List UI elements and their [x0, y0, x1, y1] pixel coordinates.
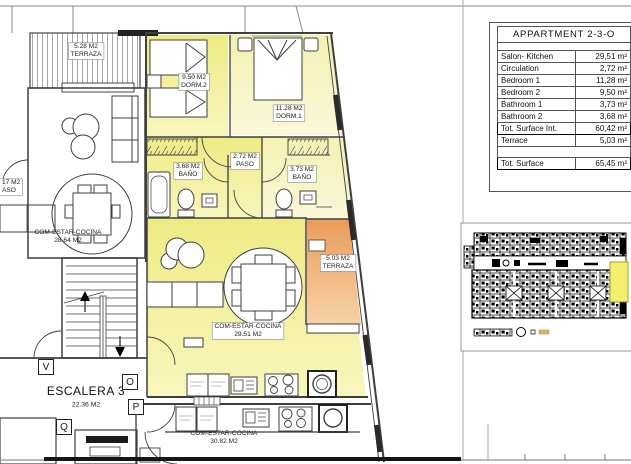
room-label-dorm2: 9.50 M2 DORM.2: [179, 74, 209, 90]
table-row: Circulation 2,72 m²: [498, 63, 631, 75]
surface-table: APPARTMENT 2-3-O Salon- Kitchen 29,51 m²…: [497, 26, 631, 170]
stair-up-arrow-icon: [80, 291, 90, 312]
stove-icon: [265, 374, 298, 396]
room-label-dorm1: 11.28 M2 DORM.1: [273, 105, 304, 121]
room-label-neighbor-south: COM-ESTAR-COCINA 30.82 M2: [189, 430, 260, 446]
dining-table-icon: [224, 248, 302, 326]
room-label-bano2: 3.68 M2 BAÑO: [174, 163, 202, 179]
room-label-paso-west: 17 M2 ASO: [0, 179, 22, 195]
kitchen-unit: [176, 407, 196, 431]
neighbor-s-kitchen: [165, 405, 360, 432]
room-label-escalera-area: 22.36 M2: [72, 402, 100, 409]
key-plan: [461, 223, 631, 351]
floorplan-sheet: 5.28 M2 TERRAZA COM-ESTAR-COCINA 28.64 M…: [0, 0, 631, 464]
room-label-neighbor-nw: COM-ESTAR-COCINA 28.64 M2: [33, 229, 104, 245]
terrace-nw: [30, 30, 158, 92]
stove-icon: [279, 407, 312, 431]
marker-v: V: [38, 359, 54, 375]
toilet-icon: [178, 189, 194, 209]
nightstand-icon: [304, 38, 318, 51]
table-row: Bedroom 2 9,50 m²: [498, 87, 631, 99]
sofa-icon: [112, 96, 138, 162]
kitchen-unit: [208, 374, 229, 396]
shelf-icon: [184, 338, 203, 347]
surface-table-title: APPARTMENT 2-3-O: [498, 27, 631, 43]
table-row: Salon- Kitchen 29,51 m²: [498, 51, 631, 63]
stair-down-arrow-icon: [115, 336, 125, 357]
toilet-icon: [276, 189, 292, 209]
table-row: Bathroom 2 3,68 m²: [498, 111, 631, 123]
double-bed-icon: [254, 38, 302, 100]
table-row-total: Tot. Surface 65,45 m²: [498, 158, 631, 170]
room-label-escalera: ESCALERA 3: [47, 384, 125, 398]
room-label-bano1: 3.73 M2 BAÑO: [288, 166, 316, 182]
table-row: Bedroom 1 11,28 m²: [498, 75, 631, 87]
washing-machine-icon: [319, 405, 347, 432]
nightstand-icon: [238, 38, 252, 51]
key-plan-unit-highlight: [610, 262, 628, 302]
table-spacer: [498, 147, 631, 158]
room-label-salon: COM-ESTAR-COCINA 29.51 M2: [213, 323, 284, 339]
table-row-total-int: Tot. Surface Int. 60,42 m²: [498, 123, 631, 135]
vent-icon: [194, 397, 220, 405]
stairwell: [0, 258, 147, 358]
marker-p: P: [128, 399, 144, 415]
room-label-terraza-nw: 5.28 M2 TERRAZA: [69, 43, 104, 59]
kitchen-unit: [187, 374, 208, 396]
washing-machine-icon: [308, 371, 336, 397]
table-row: Bathroom 1 3,73 m²: [498, 99, 631, 111]
bed-icon: [150, 88, 207, 117]
marker-q: Q: [56, 419, 72, 435]
kitchen-unit: [197, 407, 217, 431]
nightstand-icon: [147, 75, 161, 88]
table-spacer: [498, 43, 631, 51]
room-label-paso: 2.72 M2 PASO: [231, 153, 259, 169]
sofa-icon: [147, 282, 223, 307]
plant-icon: [62, 114, 99, 159]
table-row: Terrace 5,03 m²: [498, 135, 631, 147]
room-label-terraza-east: 5.03 M2 TERRAZA: [321, 255, 356, 271]
marker-o: O: [122, 374, 138, 390]
bed-icon: [150, 40, 207, 75]
